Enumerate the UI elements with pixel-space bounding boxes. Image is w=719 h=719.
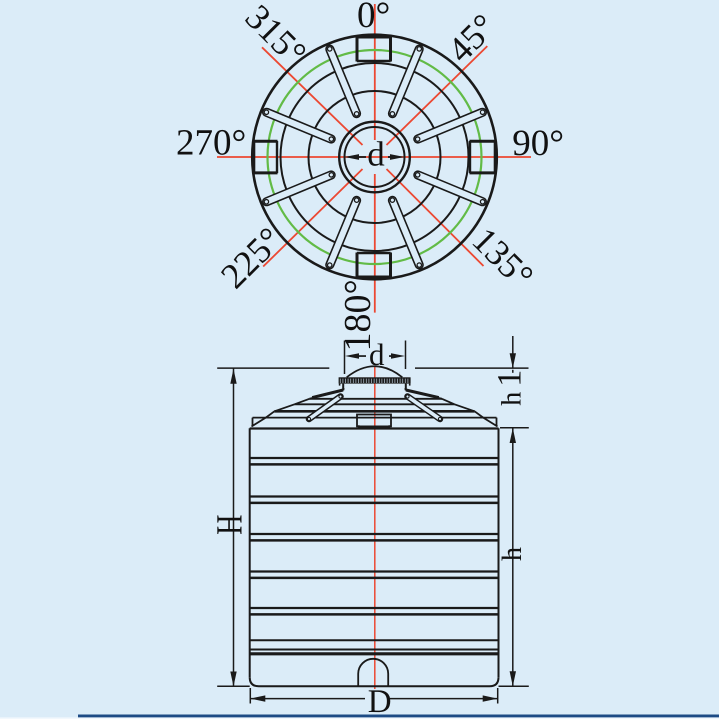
svg-text:h: h [497,547,528,561]
svg-text:D: D [368,684,392,719]
svg-text:d: d [369,337,385,372]
svg-text:h: h [496,392,527,406]
svg-text:90°: 90° [512,123,564,164]
svg-text:H: H [210,515,251,535]
svg-text:0°: 0° [357,0,390,36]
svg-text:d: d [367,135,385,174]
svg-text:270°: 270° [176,122,246,163]
svg-text:1: 1 [492,370,529,387]
